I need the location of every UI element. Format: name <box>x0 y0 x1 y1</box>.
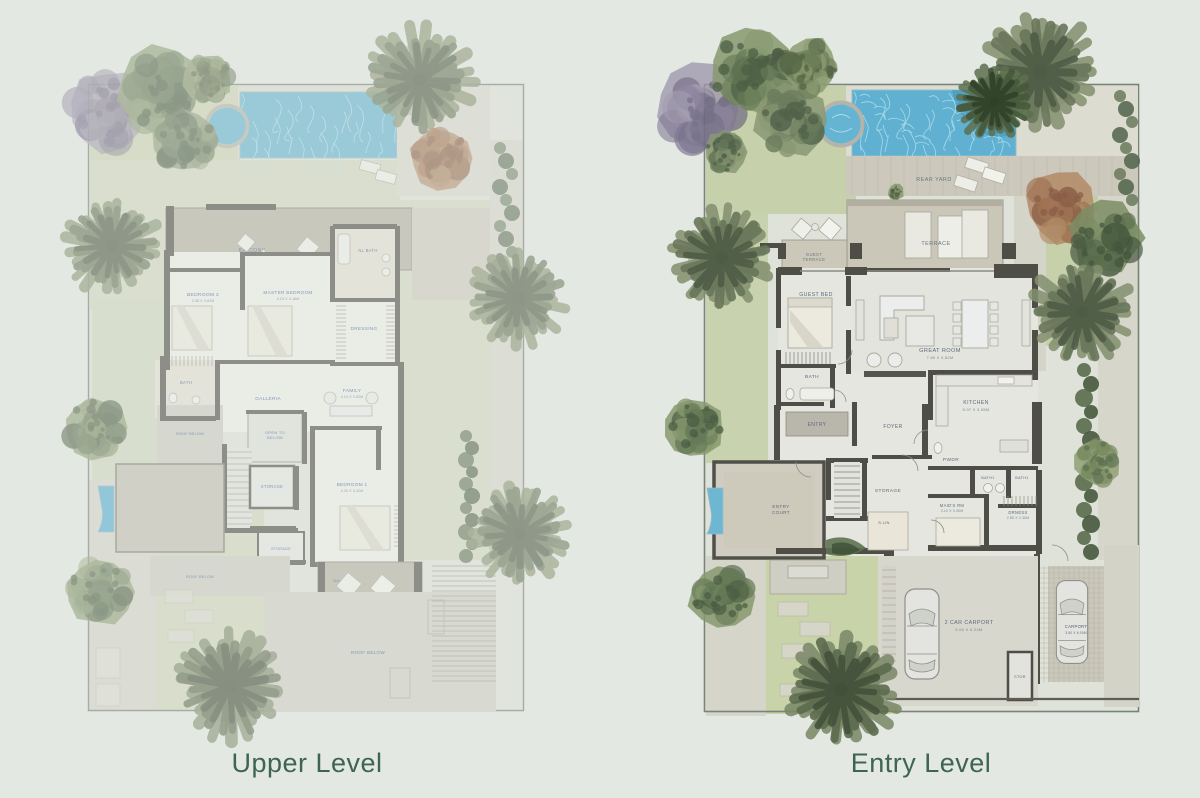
svg-text:BATH1: BATH1 <box>981 476 994 480</box>
svg-text:2 CAR CARPORT: 2 CAR CARPORT <box>945 620 994 626</box>
svg-text:4.10 X 2.82M: 4.10 X 2.82M <box>341 395 364 399</box>
svg-text:STORAGE: STORAGE <box>261 484 284 489</box>
svg-text:BEDROOM 2: BEDROOM 2 <box>187 292 219 298</box>
svg-text:MASTER BEDROOM: MASTER BEDROOM <box>263 290 312 295</box>
svg-text:DRNESS: DRNESS <box>1008 510 1027 515</box>
svg-text:MAID'S RM: MAID'S RM <box>940 503 965 508</box>
svg-text:ENTRY: ENTRY <box>808 422 827 428</box>
svg-text:ROOF BELOW: ROOF BELOW <box>176 432 204 436</box>
svg-text:TERRACE: TERRACE <box>921 241 950 247</box>
svg-text:GUEST BED: GUEST BED <box>799 292 832 298</box>
svg-text:5.60 X 6.22M: 5.60 X 6.22M <box>955 627 982 632</box>
svg-text:CARPORT: CARPORT <box>1065 624 1088 629</box>
svg-text:FAMILY: FAMILY <box>343 388 362 394</box>
svg-text:4.30 X 3.42M: 4.30 X 3.42M <box>341 489 364 493</box>
svg-text:REAR YARD: REAR YARD <box>916 177 951 183</box>
svg-text:Upper Level: Upper Level <box>231 748 382 778</box>
svg-text:KITCHEN: KITCHEN <box>963 400 989 406</box>
svg-text:GALLERIA: GALLERIA <box>255 396 281 402</box>
svg-text:Entry Level: Entry Level <box>851 748 992 778</box>
svg-text:BATH: BATH <box>805 374 819 380</box>
svg-text:BEDROOM 1: BEDROOM 1 <box>337 482 368 487</box>
svg-text:ROOF BELOW: ROOF BELOW <box>186 575 214 579</box>
svg-text:BELOW: BELOW <box>267 435 283 440</box>
svg-text:3.38 X 3.62M: 3.38 X 3.62M <box>192 299 215 303</box>
svg-text:BATH: BATH <box>180 380 192 385</box>
svg-text:3.60 X 6.00M: 3.60 X 6.00M <box>1065 631 1087 635</box>
svg-text:STORAGE: STORAGE <box>271 547 291 551</box>
svg-text:NL BATH: NL BATH <box>358 248 377 253</box>
svg-text:PWDR: PWDR <box>943 457 959 463</box>
svg-text:BATH1: BATH1 <box>1015 476 1028 480</box>
svg-text:4.23 X 4.16M: 4.23 X 4.16M <box>277 297 300 301</box>
svg-text:TERRACE: TERRACE <box>803 257 826 262</box>
svg-text:DRESSING: DRESSING <box>351 326 378 331</box>
svg-text:STOR: STOR <box>1014 675 1026 679</box>
svg-text:GREAT ROOM: GREAT ROOM <box>919 348 961 354</box>
svg-text:7.60 X 4.62M: 7.60 X 4.62M <box>927 355 954 360</box>
svg-text:3.10 X 3.30M: 3.10 X 3.30M <box>941 509 964 513</box>
svg-text:S.LIN: S.LIN <box>878 520 890 525</box>
svg-text:ENTRY: ENTRY <box>772 504 789 509</box>
svg-text:5.07 X 3.05M: 5.07 X 3.05M <box>963 407 990 412</box>
svg-text:2.85 X 2.35M: 2.85 X 2.35M <box>1007 516 1030 520</box>
svg-text:COURT: COURT <box>772 510 790 515</box>
svg-text:STORAGE: STORAGE <box>875 488 901 494</box>
svg-text:ROOF BELOW: ROOF BELOW <box>351 650 386 655</box>
svg-text:FOYER: FOYER <box>883 424 902 430</box>
